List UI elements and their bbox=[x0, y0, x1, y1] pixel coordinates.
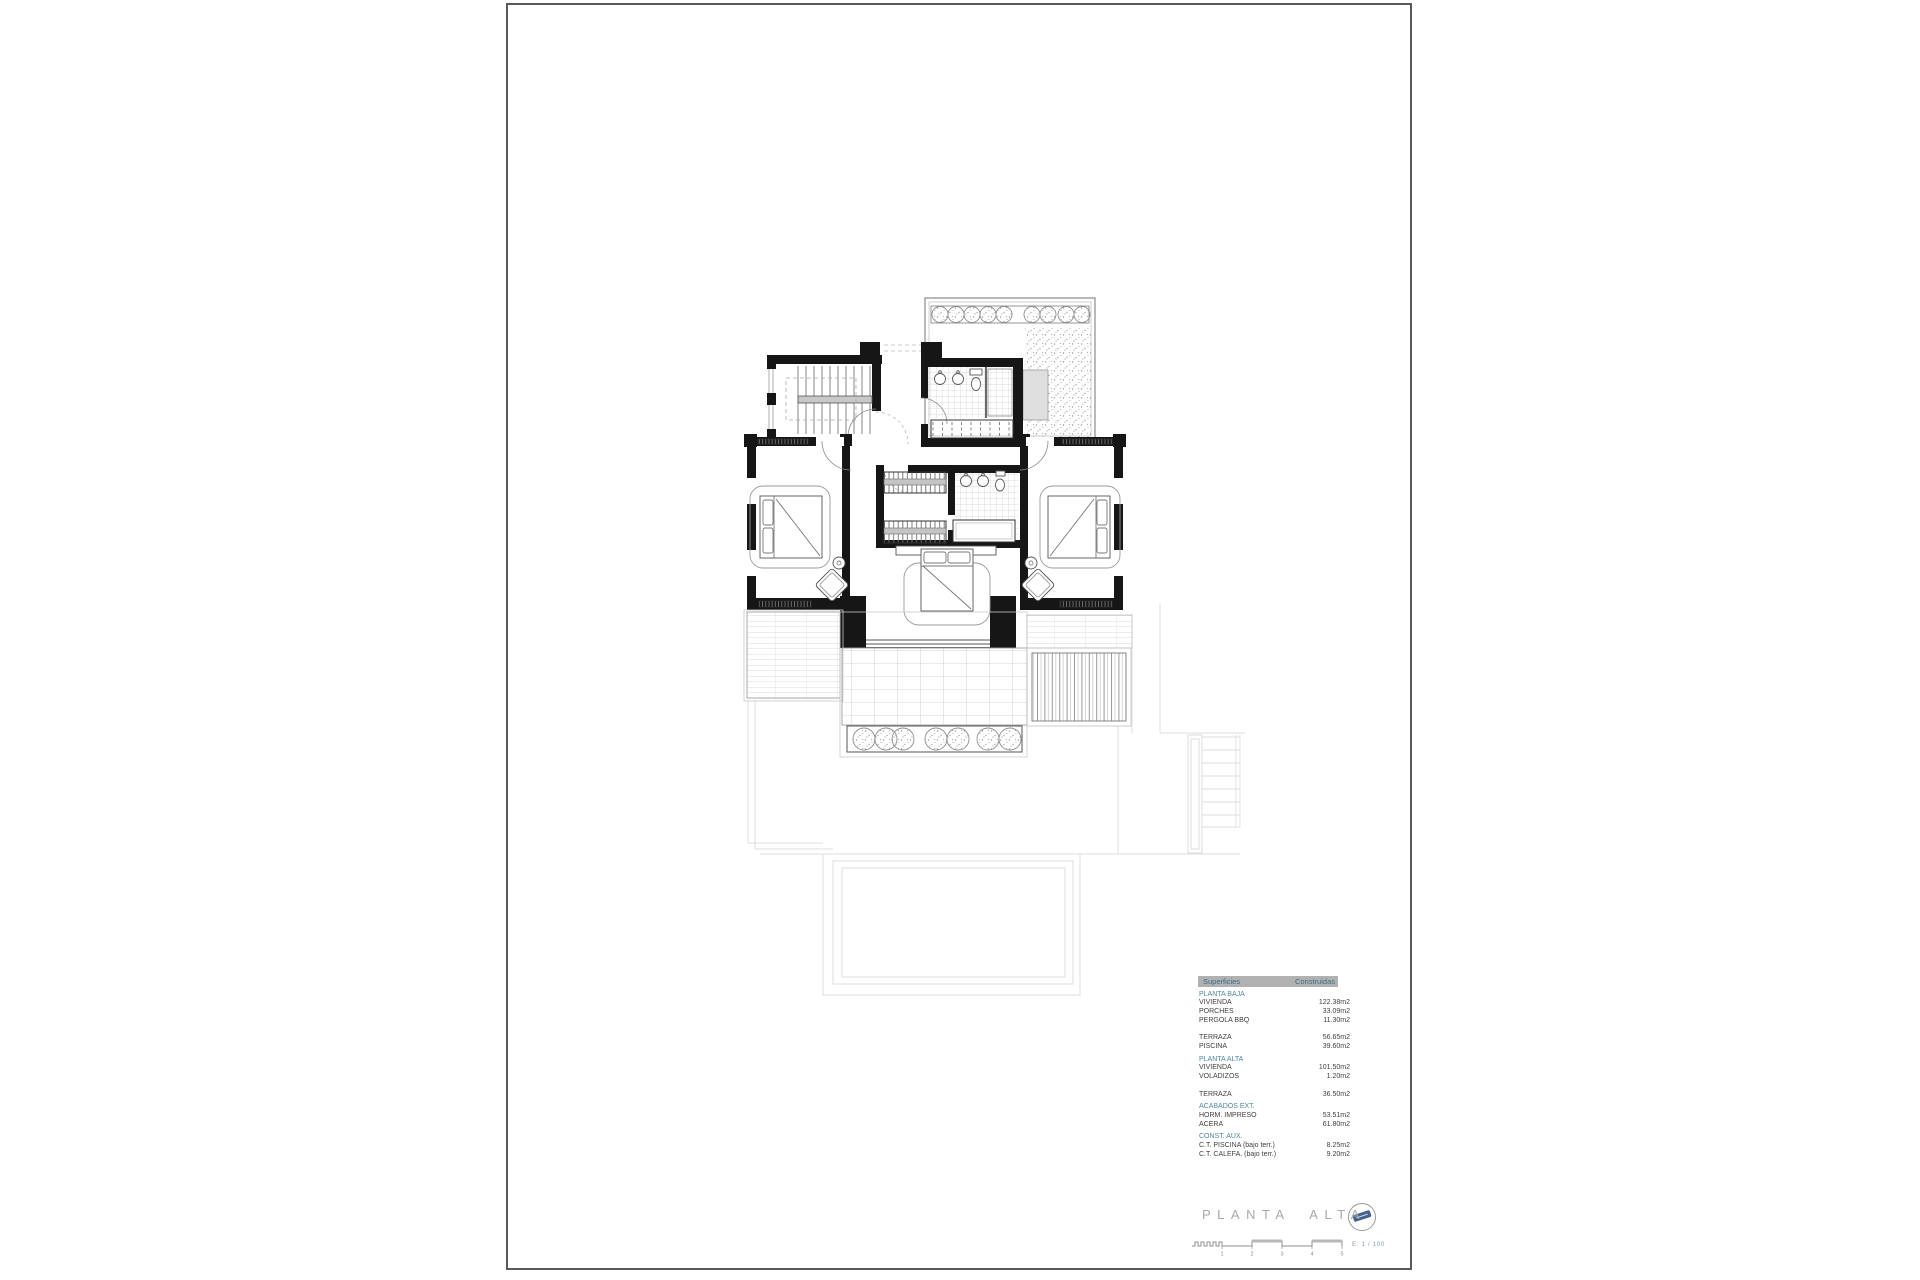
table-row: VOLADIZOS1.20m2 bbox=[1198, 1073, 1350, 1082]
pillow bbox=[1097, 500, 1107, 525]
row-label: PLANTA BAJA bbox=[1198, 991, 1245, 1000]
table-row: PERGOLA BBQ11.30m2 bbox=[1198, 1017, 1350, 1026]
terrace-center bbox=[842, 648, 1027, 725]
table-row: VIVIENDA122.38m2 bbox=[1198, 999, 1350, 1008]
wardrobe bbox=[884, 472, 946, 493]
row-label: C.T. PISCINA (bajo terr.) bbox=[1198, 1142, 1275, 1151]
pillar bbox=[840, 596, 866, 648]
table-row: PISCINA39.60m2 bbox=[1198, 1043, 1350, 1052]
table-spacer-row bbox=[1198, 1082, 1350, 1091]
table-row: C.T. PISCINA (bajo terr.)8.25m2 bbox=[1198, 1142, 1350, 1151]
table-section-row: PLANTA BAJA bbox=[1198, 991, 1350, 1000]
scale-note: E: 1 / 100 bbox=[1352, 1241, 1385, 1248]
table-section-row: CONST. AUX. bbox=[1198, 1133, 1350, 1142]
table-row: ACERA61.80m2 bbox=[1198, 1121, 1350, 1130]
planter-bushes bbox=[853, 728, 1021, 750]
row-value: 101.50m2 bbox=[1319, 1064, 1350, 1073]
table-row: TERRAZA56.65m2 bbox=[1198, 1034, 1350, 1043]
pillar bbox=[990, 596, 1016, 648]
sliding-glass-door bbox=[866, 640, 990, 648]
exterior-stair bbox=[1188, 735, 1240, 853]
slat-deck bbox=[1032, 653, 1126, 721]
terraces bbox=[744, 610, 1132, 757]
header-col-superficies: Superficies bbox=[1203, 976, 1240, 987]
row-label: ACABADOS EXT. bbox=[1198, 1103, 1255, 1112]
bedroom-right-furniture bbox=[1021, 486, 1120, 602]
scale-bar bbox=[1192, 1241, 1342, 1249]
toilet-icon bbox=[996, 471, 1006, 491]
row-value: 8.25m2 bbox=[1327, 1142, 1350, 1151]
table-spacer-row bbox=[1198, 1026, 1350, 1035]
bedroom-left-furniture bbox=[750, 486, 849, 602]
roof-edge-dashed bbox=[884, 345, 921, 351]
scale-number: 1 bbox=[1220, 1252, 1223, 1258]
wardrobe bbox=[884, 521, 946, 543]
table-row: PORCHES33.09m2 bbox=[1198, 1008, 1350, 1017]
header-col-construidas: Construidas bbox=[1295, 976, 1335, 987]
terrace-right-strip bbox=[1027, 615, 1132, 648]
row-label: VIVIENDA bbox=[1198, 999, 1232, 1008]
terrace-left bbox=[747, 612, 840, 698]
window-strip bbox=[1060, 601, 1112, 607]
scale-number: 4 bbox=[1310, 1252, 1313, 1258]
scale-number: 3 bbox=[1280, 1252, 1283, 1258]
window-strip bbox=[1062, 439, 1112, 444]
row-value: 56.65m2 bbox=[1323, 1034, 1350, 1043]
row-label: VIVIENDA bbox=[1198, 1064, 1232, 1073]
pillow bbox=[924, 552, 946, 563]
table-section-row: ACABADOS EXT. bbox=[1198, 1103, 1350, 1112]
dressing-room bbox=[876, 465, 1020, 548]
table-row: HORM. IMPRESO53.51m2 bbox=[1198, 1112, 1350, 1121]
row-label: HORM. IMPRESO bbox=[1198, 1112, 1257, 1121]
table-row: C.T. CALEFA. (bajo terr.)9.20m2 bbox=[1198, 1151, 1350, 1160]
table-row: TERRAZA36.50m2 bbox=[1198, 1091, 1350, 1100]
pillow bbox=[1097, 528, 1107, 553]
staircase bbox=[786, 366, 872, 434]
row-label: C.T. CALEFA. (bajo terr.) bbox=[1198, 1151, 1276, 1160]
row-value: 61.80m2 bbox=[1323, 1121, 1350, 1130]
row-label: PORCHES bbox=[1198, 1008, 1234, 1017]
row-label: ACERA bbox=[1198, 1121, 1223, 1130]
row-label: CONST. AUX. bbox=[1198, 1133, 1243, 1142]
row-value: 36.50m2 bbox=[1323, 1091, 1350, 1100]
pillow bbox=[763, 528, 773, 553]
scale-number: 5 bbox=[1340, 1252, 1343, 1258]
floor-plan-drawing: 1 2 3 4 5 bbox=[0, 0, 1920, 1280]
row-label: PLANTA ALTA bbox=[1198, 1056, 1243, 1065]
pillow bbox=[948, 552, 970, 563]
row-value: 1.20m2 bbox=[1327, 1073, 1350, 1082]
stair-room bbox=[766, 342, 882, 438]
row-label: PERGOLA BBQ bbox=[1198, 1017, 1249, 1026]
areas-table-header: Superficies Construidas bbox=[1198, 976, 1338, 987]
roof-bench bbox=[1023, 370, 1048, 420]
row-value: 9.20m2 bbox=[1327, 1151, 1350, 1160]
sheet-title: PLANTA ALTA bbox=[1202, 1207, 1366, 1222]
row-value: 122.38m2 bbox=[1319, 999, 1350, 1008]
areas-rows: PLANTA BAJAVIVIENDA122.38m2PORCHES33.09m… bbox=[1198, 991, 1350, 1160]
areas-table: Superficies Construidas PLANTA BAJAVIVIE… bbox=[1198, 976, 1350, 1159]
row-label: TERRAZA bbox=[1198, 1034, 1232, 1043]
row-label: PISCINA bbox=[1198, 1043, 1227, 1052]
closet-strip bbox=[931, 420, 1013, 438]
row-label: TERRAZA bbox=[1198, 1091, 1232, 1100]
row-label: VOLADIZOS bbox=[1198, 1073, 1239, 1082]
row-value: 33.09m2 bbox=[1323, 1008, 1350, 1017]
window-strip bbox=[758, 439, 808, 444]
table-row: VIVIENDA101.50m2 bbox=[1198, 1064, 1350, 1073]
vanity-counter bbox=[953, 520, 1015, 542]
pillow bbox=[763, 500, 773, 525]
row-value: 53.51m2 bbox=[1323, 1112, 1350, 1121]
table-section-row: PLANTA ALTA bbox=[1198, 1056, 1350, 1065]
row-value: 39.60m2 bbox=[1323, 1043, 1350, 1052]
scale-number: 2 bbox=[1250, 1252, 1253, 1258]
window-strip bbox=[759, 601, 811, 607]
row-value: 11.30m2 bbox=[1323, 1017, 1350, 1026]
master-bedroom-furniture bbox=[896, 546, 996, 625]
